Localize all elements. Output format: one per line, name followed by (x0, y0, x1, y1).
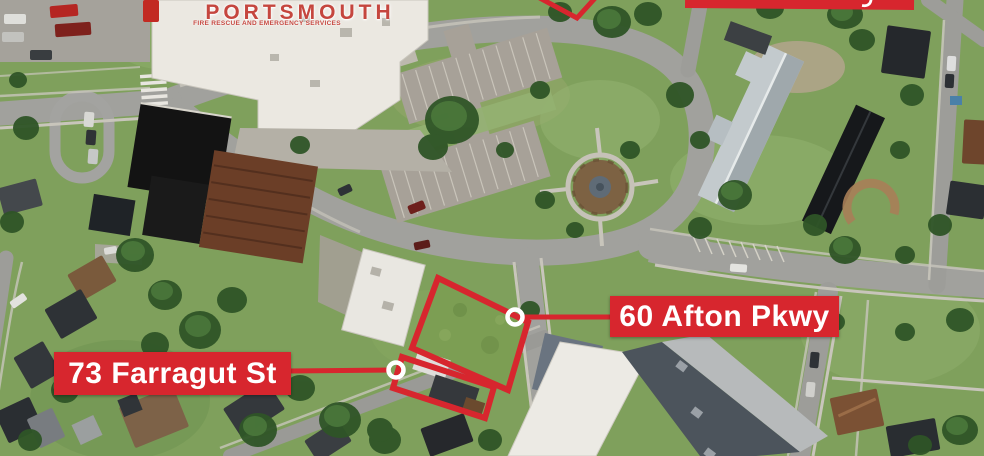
logo-portsmouth-subtitle: FIRE RESCUE AND EMERGENCY SERVICES (191, 20, 343, 27)
leader-line-farragut (289, 370, 390, 371)
aerial-map: PORTSMOUTH FIRE RESCUE AND EMERGENCY SER… (0, 0, 984, 456)
parcel-outline-afton (412, 278, 528, 390)
label-73-farragut-st: 73 Farragut St (54, 352, 291, 395)
parcel-outline-partial-top (536, 0, 597, 18)
label-bar-partial-top-right (685, 0, 914, 10)
label-60-afton-pkwy: 60 Afton Pkwy (610, 296, 839, 337)
parcel-outline-farragut (393, 357, 494, 418)
